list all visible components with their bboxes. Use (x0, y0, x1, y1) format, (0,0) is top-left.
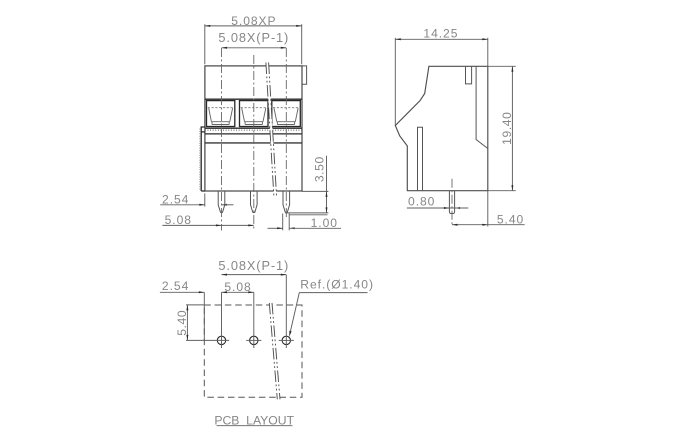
svg-text:5.08: 5.08 (224, 280, 251, 294)
svg-text:5.40: 5.40 (497, 213, 524, 227)
svg-text:3.50: 3.50 (313, 156, 327, 182)
svg-text:19.40: 19.40 (500, 112, 514, 145)
svg-text:2.54: 2.54 (162, 193, 189, 207)
svg-text:5.08: 5.08 (165, 213, 192, 227)
svg-text:Ref.(Ø1.40): Ref.(Ø1.40) (300, 277, 374, 291)
svg-text:2.54: 2.54 (162, 279, 189, 293)
svg-text:5.08X(P-1): 5.08X(P-1) (218, 30, 289, 45)
svg-text:14.25: 14.25 (423, 27, 458, 41)
svg-text:5.08XP: 5.08XP (231, 14, 276, 28)
svg-text:5.08X(P-1): 5.08X(P-1) (218, 258, 289, 273)
svg-text:0.80: 0.80 (408, 195, 435, 209)
svg-text:5.40: 5.40 (175, 310, 189, 336)
svg-text:1.00: 1.00 (311, 216, 338, 230)
